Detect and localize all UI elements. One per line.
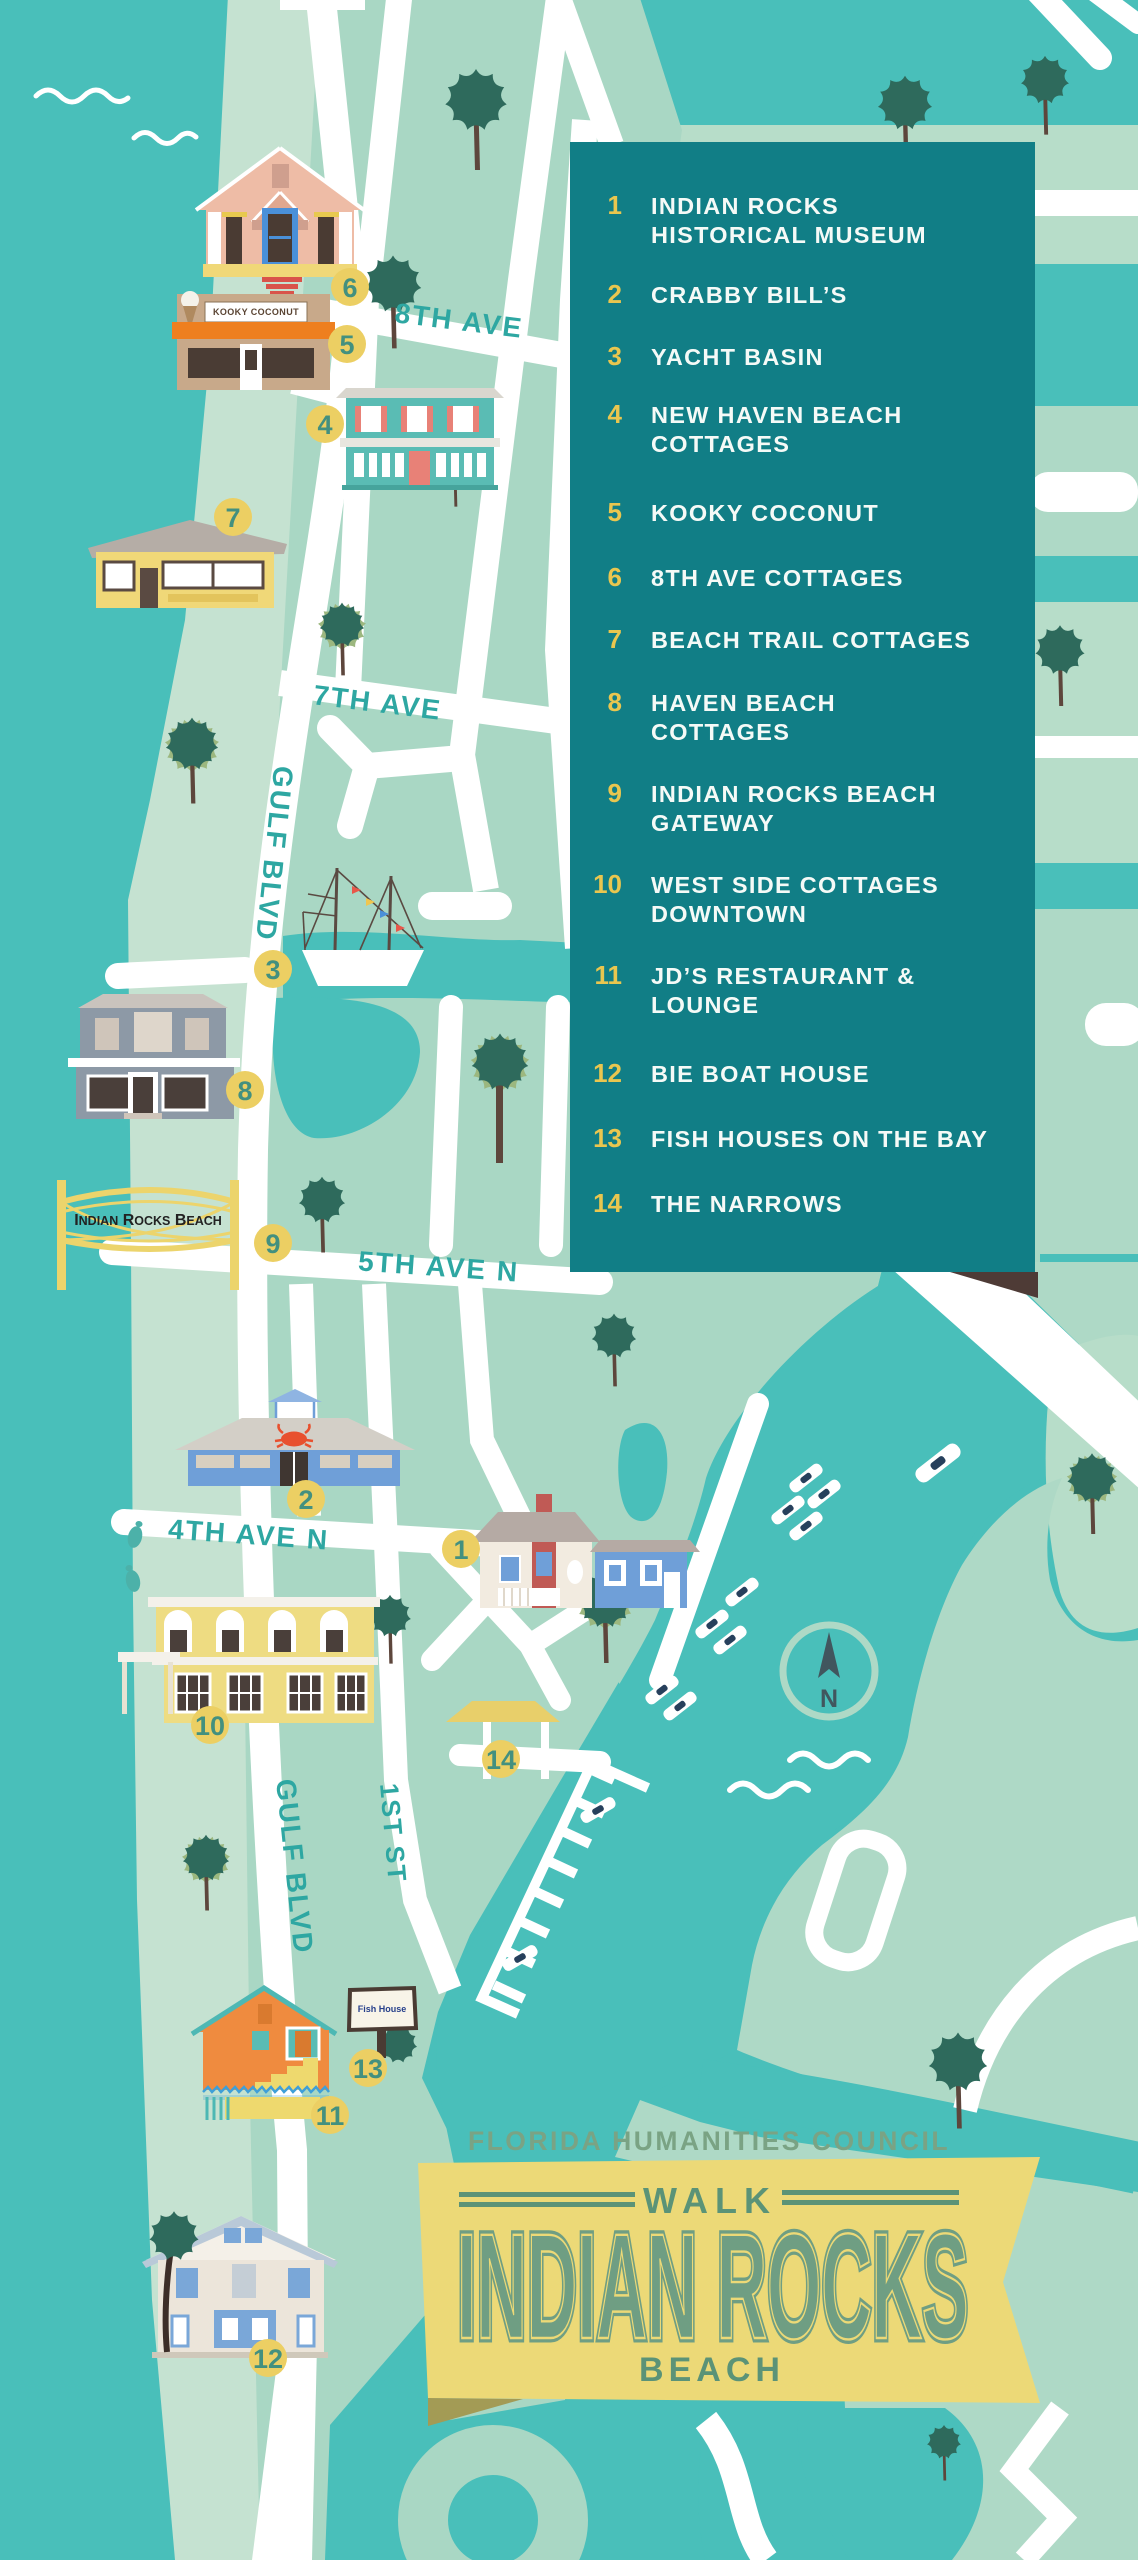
svg-text:COTTAGES: COTTAGES bbox=[651, 719, 790, 745]
svg-text:COTTAGES: COTTAGES bbox=[651, 431, 790, 457]
svg-text:WEST SIDE COTTAGES: WEST SIDE COTTAGES bbox=[651, 872, 939, 898]
svg-text:5: 5 bbox=[339, 330, 354, 360]
svg-text:6: 6 bbox=[608, 562, 622, 592]
svg-text:BIE BOAT HOUSE: BIE BOAT HOUSE bbox=[651, 1061, 870, 1087]
svg-text:1: 1 bbox=[453, 1535, 468, 1565]
svg-text:4: 4 bbox=[608, 399, 623, 429]
svg-text:14: 14 bbox=[593, 1188, 622, 1218]
svg-text:KOOKY COCONUT: KOOKY COCONUT bbox=[213, 307, 299, 317]
svg-text:LOUNGE: LOUNGE bbox=[651, 992, 759, 1018]
svg-text:YACHT BASIN: YACHT BASIN bbox=[651, 344, 824, 370]
svg-text:9: 9 bbox=[608, 778, 622, 808]
svg-text:10: 10 bbox=[195, 1711, 225, 1741]
svg-text:11: 11 bbox=[595, 960, 623, 990]
svg-text:8TH AVE COTTAGES: 8TH AVE COTTAGES bbox=[651, 565, 904, 591]
svg-text:3: 3 bbox=[265, 955, 280, 985]
svg-text:13: 13 bbox=[353, 2054, 383, 2084]
svg-text:3: 3 bbox=[608, 341, 622, 371]
svg-text:INDIAN ROCKS: INDIAN ROCKS bbox=[457, 2202, 968, 2370]
svg-text:HISTORICAL MUSEUM: HISTORICAL MUSEUM bbox=[651, 222, 927, 248]
svg-text:BEACH: BEACH bbox=[639, 2351, 785, 2389]
svg-text:INDIAN ROCKS: INDIAN ROCKS bbox=[651, 193, 839, 219]
svg-text:1: 1 bbox=[608, 190, 622, 220]
svg-text:Fish House: Fish House bbox=[358, 2004, 407, 2014]
svg-text:JD’S RESTAURANT &: JD’S RESTAURANT & bbox=[651, 963, 916, 989]
svg-text:FISH HOUSES ON THE BAY: FISH HOUSES ON THE BAY bbox=[651, 1126, 988, 1152]
svg-text:FLORIDA HUMANITIES COUNCIL: FLORIDA HUMANITIES COUNCIL bbox=[468, 2126, 950, 2156]
svg-text:7: 7 bbox=[225, 503, 240, 533]
svg-text:BEACH TRAIL COTTAGES: BEACH TRAIL COTTAGES bbox=[651, 627, 971, 653]
svg-text:7: 7 bbox=[608, 624, 622, 654]
svg-text:4: 4 bbox=[317, 410, 332, 440]
svg-text:8: 8 bbox=[608, 687, 622, 717]
svg-text:THE NARROWS: THE NARROWS bbox=[651, 1191, 843, 1217]
svg-text:12: 12 bbox=[253, 2344, 283, 2374]
svg-text:10: 10 bbox=[593, 869, 622, 899]
svg-text:2: 2 bbox=[608, 279, 622, 309]
svg-text:12: 12 bbox=[593, 1058, 622, 1088]
svg-text:8: 8 bbox=[237, 1076, 252, 1106]
svg-text:HAVEN BEACH: HAVEN BEACH bbox=[651, 690, 836, 716]
svg-text:2: 2 bbox=[298, 1485, 313, 1515]
svg-text:13: 13 bbox=[593, 1123, 622, 1153]
svg-text:DOWNTOWN: DOWNTOWN bbox=[651, 901, 807, 927]
svg-text:KOOKY COCONUT: KOOKY COCONUT bbox=[651, 500, 879, 526]
svg-text:CRABBY BILL’S: CRABBY BILL’S bbox=[651, 282, 848, 308]
svg-text:14: 14 bbox=[486, 1745, 516, 1775]
svg-text:INDIAN ROCKS BEACH: INDIAN ROCKS BEACH bbox=[651, 781, 937, 807]
svg-text:11: 11 bbox=[316, 2101, 345, 2131]
svg-text:9: 9 bbox=[265, 1229, 280, 1259]
svg-text:N: N bbox=[820, 1685, 838, 1713]
svg-text:6: 6 bbox=[342, 273, 357, 303]
svg-text:GATEWAY: GATEWAY bbox=[651, 810, 775, 836]
svg-text:INDIAN ROCKS BEACH: INDIAN ROCKS BEACH bbox=[74, 1212, 222, 1229]
svg-text:5: 5 bbox=[608, 497, 622, 527]
svg-text:NEW HAVEN BEACH: NEW HAVEN BEACH bbox=[651, 402, 902, 428]
